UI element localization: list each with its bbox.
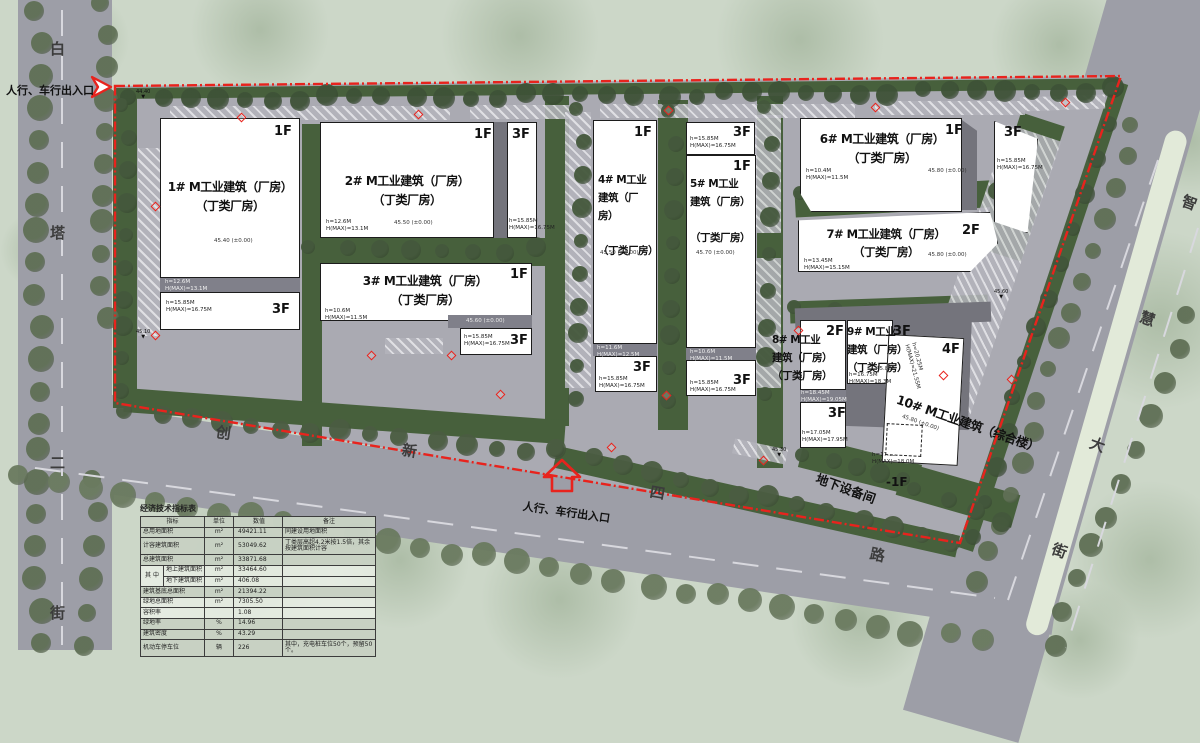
tree-icon [96, 56, 118, 78]
tree-icon [83, 535, 105, 557]
tree-icon [94, 154, 114, 174]
tree-icon [98, 25, 118, 45]
building-subtitle: （丁类厂房） [772, 370, 832, 382]
tree-icon [826, 453, 842, 469]
tree-icon [301, 240, 315, 254]
west-entrance-label: 人行、车行出入口 [6, 82, 94, 98]
tree-icon [463, 91, 479, 107]
tree-icon [155, 89, 173, 107]
building-title: 1# M工业建筑（厂房） [168, 180, 293, 194]
tree-icon [1061, 303, 1081, 323]
tree-icon [1111, 474, 1131, 494]
height-note: h=12.6M H(MAX)=13.1M [326, 219, 368, 233]
tree-icon [74, 636, 94, 656]
tree-icon [757, 100, 771, 114]
tree-icon [641, 574, 667, 600]
table-row: 绿地率 % 14.96 [141, 618, 376, 629]
spot-value: 45.60 [994, 289, 1008, 295]
cell-value: 33871.68 [234, 555, 283, 566]
tree-icon [568, 391, 584, 407]
tree-icon [613, 455, 633, 475]
tree-icon [729, 486, 749, 506]
cell-remark: 丁类层高超4.2米按1.5倍，其余按建筑面积计容 [283, 538, 376, 555]
tree-icon [119, 161, 137, 179]
basement-floor-label: -1F [886, 476, 908, 488]
cell-label: 建筑基底总面积 [141, 587, 205, 598]
cell-remark [283, 608, 376, 619]
building-title: 4# M工业 [598, 174, 646, 186]
tree-icon [90, 276, 110, 296]
tree-icon [1048, 327, 1070, 349]
tree-icon [117, 193, 137, 213]
tree-icon [598, 86, 616, 104]
cell-unit: m² [205, 576, 234, 587]
tree-icon [664, 268, 680, 284]
tree-icon [769, 594, 795, 620]
tree-icon [31, 633, 51, 653]
height-note: h=17.05M H(MAX)=17.95M [802, 430, 848, 444]
tree-icon [27, 95, 53, 121]
tree-icon [804, 604, 824, 624]
tree-icon [1154, 372, 1176, 394]
height-note: h=15.85M H(MAX)=16.75M [690, 136, 736, 150]
table-row: 地下建筑面积 m² 406.08 [141, 576, 376, 587]
parking-row [138, 148, 160, 336]
tree-icon [624, 86, 644, 106]
cell-unit: m² [205, 587, 234, 598]
cell-unit: % [205, 629, 234, 640]
tree-icon [1088, 150, 1106, 168]
tree-icon [1095, 507, 1117, 529]
tree-icon [428, 431, 448, 451]
tree-icon [1105, 82, 1119, 96]
building-title: 2# M工业建筑（厂房） [345, 174, 470, 188]
tree-icon [866, 615, 890, 639]
tree-icon [662, 361, 676, 375]
spot-value: 45.30 [772, 447, 786, 453]
building-title: 5# M工业 [690, 178, 738, 190]
site-plan-canvas: 1F 1# M工业建筑（厂房） （丁类厂房） 45.40 (±0.00) h=1… [0, 0, 1200, 650]
tree-icon [472, 542, 496, 566]
building-subtitle: （丁类厂房） [847, 362, 907, 374]
cell-unit: m² [205, 527, 234, 538]
tree-icon [48, 471, 70, 493]
tree-icon [570, 298, 588, 316]
floor-label: 1F [274, 125, 292, 138]
cell-remark [283, 555, 376, 566]
height-note: h=15.85M H(MAX)=16.75M [509, 218, 555, 232]
cell-value: 226 [234, 640, 283, 657]
floor-label: 4F [942, 343, 960, 356]
tree-icon [27, 162, 49, 184]
table-row: 机动车停车位 辆 226 其中，充电桩车位50个，预留50个。 [141, 640, 376, 657]
tree-icon [272, 421, 290, 439]
tree-icon [1027, 392, 1045, 410]
tree-icon [1053, 256, 1069, 272]
tree-icon [568, 323, 588, 343]
header-cell: 指标 [141, 517, 205, 528]
elevation-label: 45.50 (±0.00) [600, 250, 639, 256]
building-subtitle: （丁类厂房） [390, 293, 459, 307]
tree-icon [1003, 487, 1019, 503]
cell-remark [283, 576, 376, 587]
cell-unit: 辆 [205, 640, 234, 657]
height-note: h=10.4M H(MAX)=11.5M [806, 168, 848, 182]
parking-row [385, 338, 443, 354]
tree-icon [942, 534, 960, 552]
tree-icon [375, 528, 401, 554]
cell-unit: m² [205, 555, 234, 566]
tree-icon [662, 300, 680, 318]
building-subtitle: （丁类厂房） [195, 199, 264, 213]
cell-group: 其 中 [141, 565, 164, 586]
tree-icon [835, 609, 857, 631]
header-cell: 数值 [234, 517, 283, 528]
tree-icon [489, 441, 505, 457]
floor-label: 3F [272, 303, 290, 316]
building-subtitle: （丁类厂房） [372, 193, 441, 207]
tree-icon [1075, 184, 1095, 204]
cell-value: 406.08 [234, 576, 283, 587]
building-subtitle: （丁类厂房） [847, 151, 916, 165]
tree-icon [987, 457, 1007, 477]
tree-icon [526, 237, 546, 257]
tree-icon [824, 85, 842, 103]
floor-label: 3F [512, 128, 530, 141]
spot-elevation: 45.30 [772, 448, 786, 458]
building-subtitle: （丁类厂房） [853, 245, 919, 259]
tree-icon [701, 479, 719, 497]
table-row: 计容建筑面积 m² 53049.62 丁类层高超4.2米按1.5倍，其余按建筑面… [141, 538, 376, 555]
tree-icon [965, 529, 981, 545]
indicator-table-grid: 指标 单位 数值 备注 总用地面积 m² 49421.11 同建设用地面积 计容… [140, 516, 376, 657]
tree-icon [30, 382, 50, 402]
tree-icon [26, 504, 46, 524]
header-cell: 单位 [205, 517, 234, 528]
tree-icon [1066, 222, 1080, 236]
spot-value: 45.10 [136, 329, 150, 335]
tree-icon [668, 136, 684, 152]
tree-icon [972, 629, 994, 651]
tree-icon [966, 571, 988, 593]
tree-icon [795, 448, 809, 462]
tree-icon [24, 469, 50, 495]
tree-icon [666, 236, 680, 250]
cell-unit: % [205, 618, 234, 629]
tree-icon [548, 441, 564, 457]
tree-icon [570, 563, 592, 585]
tree-icon [660, 325, 680, 345]
height-note: h=15.85M H(MAX)=16.75M [997, 158, 1043, 172]
canopy-blob [1070, 480, 1200, 640]
tree-icon [1106, 178, 1126, 198]
tree-icon [764, 136, 780, 152]
tree-icon [817, 503, 835, 521]
tree-icon [92, 245, 110, 263]
height-note: h=15.85M H(MAX)=16.75M [599, 376, 645, 390]
height-note: h=15.85M H(MAX)=16.75M [166, 300, 212, 314]
cell-label: 机动车停车位 [141, 640, 205, 657]
tree-icon [456, 434, 478, 456]
tree-icon [1045, 635, 1067, 657]
tree-icon [264, 92, 282, 110]
cell-remark [283, 618, 376, 629]
tree-icon [30, 315, 54, 339]
spot-elevation: 45.60 [994, 290, 1008, 300]
tree-icon [24, 535, 46, 557]
underground-outline [885, 423, 923, 457]
tree-icon [1079, 533, 1103, 557]
cell-label: 建筑密度 [141, 629, 205, 640]
spot-value: 44.40 [136, 89, 150, 95]
tree-icon [850, 85, 870, 105]
tree-icon [1024, 84, 1040, 100]
elevation-label: 45.40 (±0.00) [214, 238, 253, 244]
street-west-char: 街 [50, 602, 65, 623]
street-west-char: 塔 [50, 222, 65, 243]
cell-value: 7305.50 [234, 597, 283, 608]
building-title: 建筑（厂房） [847, 344, 907, 356]
tree-icon [542, 83, 564, 105]
tree-icon [570, 359, 584, 373]
building-4-label: 4# M工业 建筑（厂房） （丁类厂房） [598, 172, 656, 261]
tree-icon [992, 512, 1012, 532]
cell-value: 43.29 [234, 629, 283, 640]
tree-icon [96, 123, 114, 141]
table-row: 总用地面积 m² 49421.11 同建设用地面积 [141, 527, 376, 538]
table-row: 绿地总面积 m² 7305.50 [141, 597, 376, 608]
tree-icon [601, 569, 625, 593]
floor-label: 3F [633, 361, 651, 374]
table-row: 总建筑面积 m² 33871.68 [141, 555, 376, 566]
tree-icon [664, 200, 684, 220]
building-title: 6# M工业建筑（厂房） [820, 132, 945, 146]
tree-icon [1052, 602, 1072, 622]
tree-icon [116, 403, 132, 419]
tree-icon [848, 458, 866, 476]
tree-icon [742, 82, 762, 102]
tree-icon [78, 604, 96, 622]
table-row: 建筑密度 % 43.29 [141, 629, 376, 640]
tree-icon [496, 244, 514, 262]
cell-remark [283, 597, 376, 608]
cell-unit: m² [205, 597, 234, 608]
tree-icon [504, 548, 530, 574]
tree-icon [362, 426, 378, 442]
cell-value: 14.96 [234, 618, 283, 629]
height-note: h=15.85M H(MAX)=16.75M [464, 334, 510, 348]
tree-icon [1127, 441, 1145, 459]
tree-icon [1101, 116, 1117, 132]
cell-label: 总建筑面积 [141, 555, 205, 566]
tree-icon [329, 419, 351, 441]
tree-icon [113, 383, 129, 399]
cell-label: 总用地面积 [141, 527, 205, 538]
building-8-label: 8# M工业 建筑（厂房） （丁类厂房） [772, 332, 852, 386]
tree-icon [410, 538, 430, 558]
cell-label: 地上建筑面积 [164, 565, 205, 576]
indicator-table-title: 经济技术指标表 [140, 503, 376, 514]
height-note: h=10.6M H(MAX)=11.5M [325, 308, 367, 322]
tree-icon [121, 130, 137, 146]
elevation-label: 45.50 (±0.00) [394, 220, 433, 226]
street-west-char: 二 [50, 452, 65, 473]
building-6-label: 6# M工业建筑（厂房） （丁类厂房） [806, 130, 958, 167]
parking-row [600, 104, 855, 118]
spot-elevation: 45.10 [136, 330, 150, 340]
tree-icon [1139, 404, 1163, 428]
tree-icon [798, 85, 814, 101]
building-title: 建筑（厂房） [772, 352, 832, 364]
table-header-row: 指标 单位 数值 备注 [141, 517, 376, 528]
tree-icon [768, 81, 790, 103]
building-title: 7# M工业建筑（厂房） [826, 227, 945, 241]
cell-value: 21394.22 [234, 587, 283, 598]
building-shadow [962, 120, 977, 210]
tree-icon [707, 583, 729, 605]
cell-remark [283, 629, 376, 640]
cell-label: 地下建筑面积 [164, 576, 205, 587]
tree-icon [114, 98, 128, 112]
tree-icon [290, 91, 310, 111]
height-note: h=10.6M H(MAX)=11.5M [690, 349, 732, 363]
tree-icon [576, 134, 592, 150]
cell-remark: 同建设用地面积 [283, 527, 376, 538]
cell-label: 计容建筑面积 [141, 538, 205, 555]
cell-remark [283, 565, 376, 576]
tree-icon [1122, 117, 1138, 133]
tree-icon [516, 83, 536, 103]
building-title: 建筑（厂房） [690, 196, 750, 208]
tree-icon [113, 316, 133, 336]
tree-icon [154, 406, 172, 424]
building-5-label: 5# M工业 建筑（厂房） （丁类厂房） [690, 176, 752, 247]
tree-icon [762, 247, 776, 261]
parking-row [875, 101, 1025, 115]
height-note: h=13.45M H(MAX)=15.15M [804, 258, 850, 272]
tree-icon [316, 84, 338, 106]
tree-icon [854, 510, 874, 530]
tree-icon [762, 172, 780, 190]
tree-icon [23, 284, 45, 306]
landscape-strip [302, 124, 322, 446]
tree-icon [967, 502, 985, 520]
tree-icon [79, 567, 103, 591]
floor-label: 3F [510, 334, 528, 347]
building-2-label: 2# M工业建筑（厂房） （丁类厂房） [322, 172, 492, 209]
tree-icon [88, 502, 108, 522]
parking-row [565, 112, 591, 388]
cell-remark [283, 587, 376, 598]
tree-icon [574, 166, 592, 184]
tree-icon [117, 260, 133, 276]
cell-label: 绿地总面积 [141, 597, 205, 608]
building-title: 建筑（厂房） [598, 192, 638, 222]
street-east-char: 智 [1179, 190, 1200, 215]
tree-icon [1094, 208, 1116, 230]
cell-label: 容积率 [141, 608, 205, 619]
header-cell: 备注 [283, 517, 376, 528]
tree-icon [897, 621, 923, 647]
tree-icon [666, 168, 684, 186]
tree-icon [569, 102, 583, 116]
street-west-char: 白 [50, 38, 65, 59]
tree-icon [1073, 273, 1091, 291]
street-south-char: 创 [215, 421, 233, 444]
tree-icon [1068, 569, 1086, 587]
building-9-label: 9# M工业 建筑（厂房） （丁类厂房） [847, 324, 931, 378]
elevation-label: 45.70 (±0.00) [696, 250, 735, 256]
floor-label: 1F [634, 126, 652, 139]
elevation-label: 45.80 (±0.00) [928, 168, 967, 174]
table-row: 容积率 1.08 [141, 608, 376, 619]
tree-icon [23, 217, 49, 243]
building-title: 9# M工业 [847, 326, 895, 338]
tree-icon [25, 193, 49, 217]
tree-icon [26, 437, 50, 461]
cell-value: 53049.62 [234, 538, 283, 555]
floor-label: 3F [828, 407, 846, 420]
indicator-table: 经济技术指标表 指标 单位 数值 备注 总用地面积 m² 49421.11 同建… [140, 503, 376, 657]
tree-icon [1040, 290, 1058, 308]
parking-row [470, 105, 580, 119]
tree-icon [572, 198, 592, 218]
tree-icon [907, 482, 921, 496]
tree-icon [1177, 306, 1195, 324]
cell-label: 绿地率 [141, 618, 205, 629]
tree-icon [539, 557, 559, 577]
tree-icon [28, 413, 50, 435]
tree-icon [574, 234, 588, 248]
tree-icon [585, 448, 603, 466]
tree-icon [758, 387, 772, 401]
tree-icon [441, 544, 463, 566]
tree-icon [8, 465, 28, 485]
tree-icon [1119, 147, 1137, 165]
cell-value: 33464.60 [234, 565, 283, 576]
table-row: 建筑基底总面积 m² 21394.22 [141, 587, 376, 598]
tree-icon [941, 81, 959, 99]
tree-icon [738, 588, 762, 612]
cell-unit: m² [205, 565, 234, 576]
tree-icon [994, 80, 1016, 102]
floor-label: 3F [1004, 126, 1022, 139]
tree-icon [760, 283, 776, 299]
tree-icon [433, 87, 455, 109]
height-note: h=18.45M H(MAX)=19.05M [801, 390, 847, 404]
building-shadow [494, 122, 507, 238]
tree-icon [1085, 243, 1101, 259]
floor-label: 1F [474, 128, 492, 141]
tree-icon [1040, 361, 1056, 377]
elevation-label: 45.80 (±0.00) [928, 252, 967, 258]
tree-icon [110, 482, 136, 508]
tree-icon [1170, 339, 1190, 359]
tree-icon [401, 240, 421, 260]
cell-value: 49421.11 [234, 527, 283, 538]
tree-icon [673, 472, 689, 488]
table-row: 其 中 地上建筑面积 m² 33464.60 [141, 565, 376, 576]
tree-icon [371, 240, 389, 258]
building-1-label: 1# M工业建筑（厂房） （丁类厂房） [163, 178, 297, 215]
height-note: h=12.6M H(MAX)=13.1M [165, 279, 207, 293]
building-title: 8# M工业 [772, 334, 820, 346]
tree-icon [24, 1, 44, 21]
tree-icon [676, 584, 696, 604]
height-note: h=15.85M H(MAX)=16.75M [690, 380, 736, 394]
tree-icon [572, 266, 588, 282]
cell-value: 1.08 [234, 608, 283, 619]
